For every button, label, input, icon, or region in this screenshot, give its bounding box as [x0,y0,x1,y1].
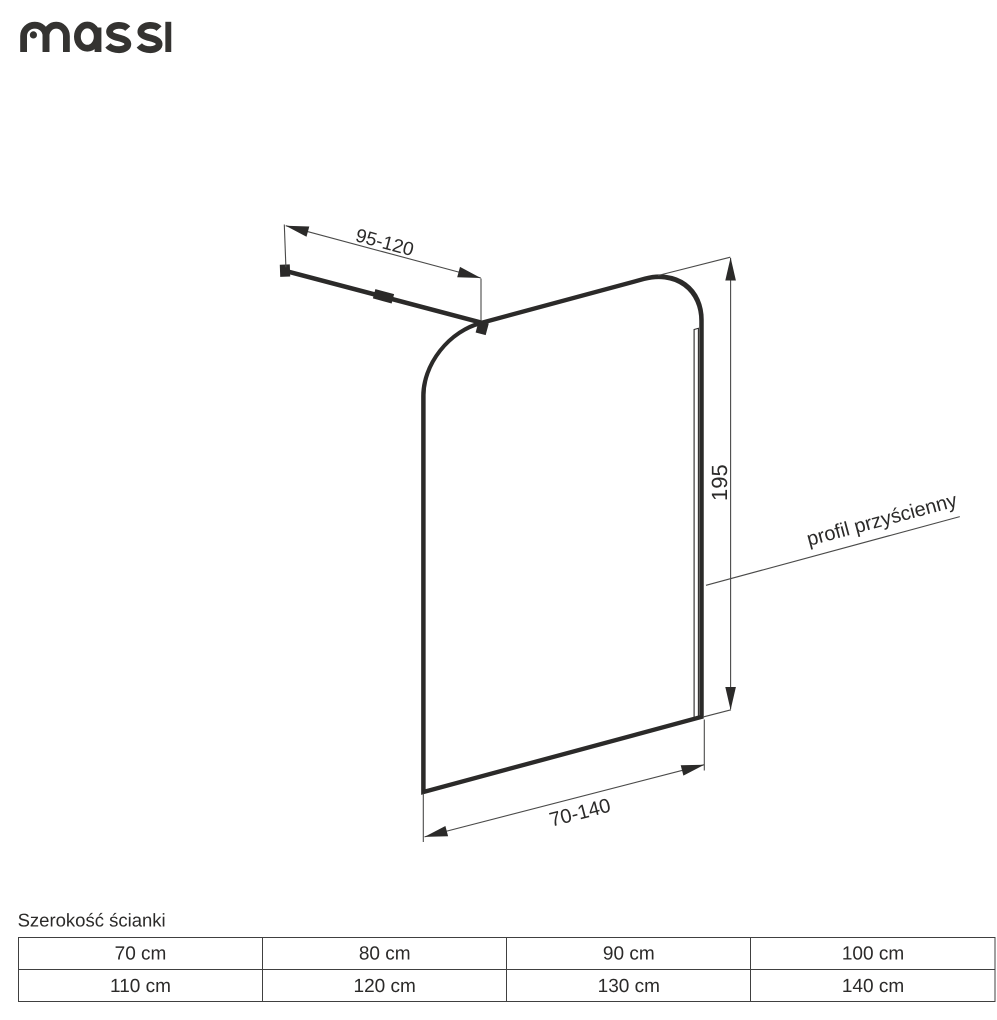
svg-text:140 cm: 140 cm [842,976,904,997]
svg-text:130 cm: 130 cm [598,976,660,997]
svg-text:70 cm: 70 cm [115,944,167,965]
svg-text:80 cm: 80 cm [359,944,411,965]
svg-text:120 cm: 120 cm [354,976,416,997]
svg-text:90 cm: 90 cm [603,944,655,965]
svg-text:Szerokość ścianki: Szerokość ścianki [18,910,166,931]
svg-text:110 cm: 110 cm [110,976,171,997]
svg-text:100 cm: 100 cm [842,944,904,965]
svg-text:195: 195 [707,464,732,501]
